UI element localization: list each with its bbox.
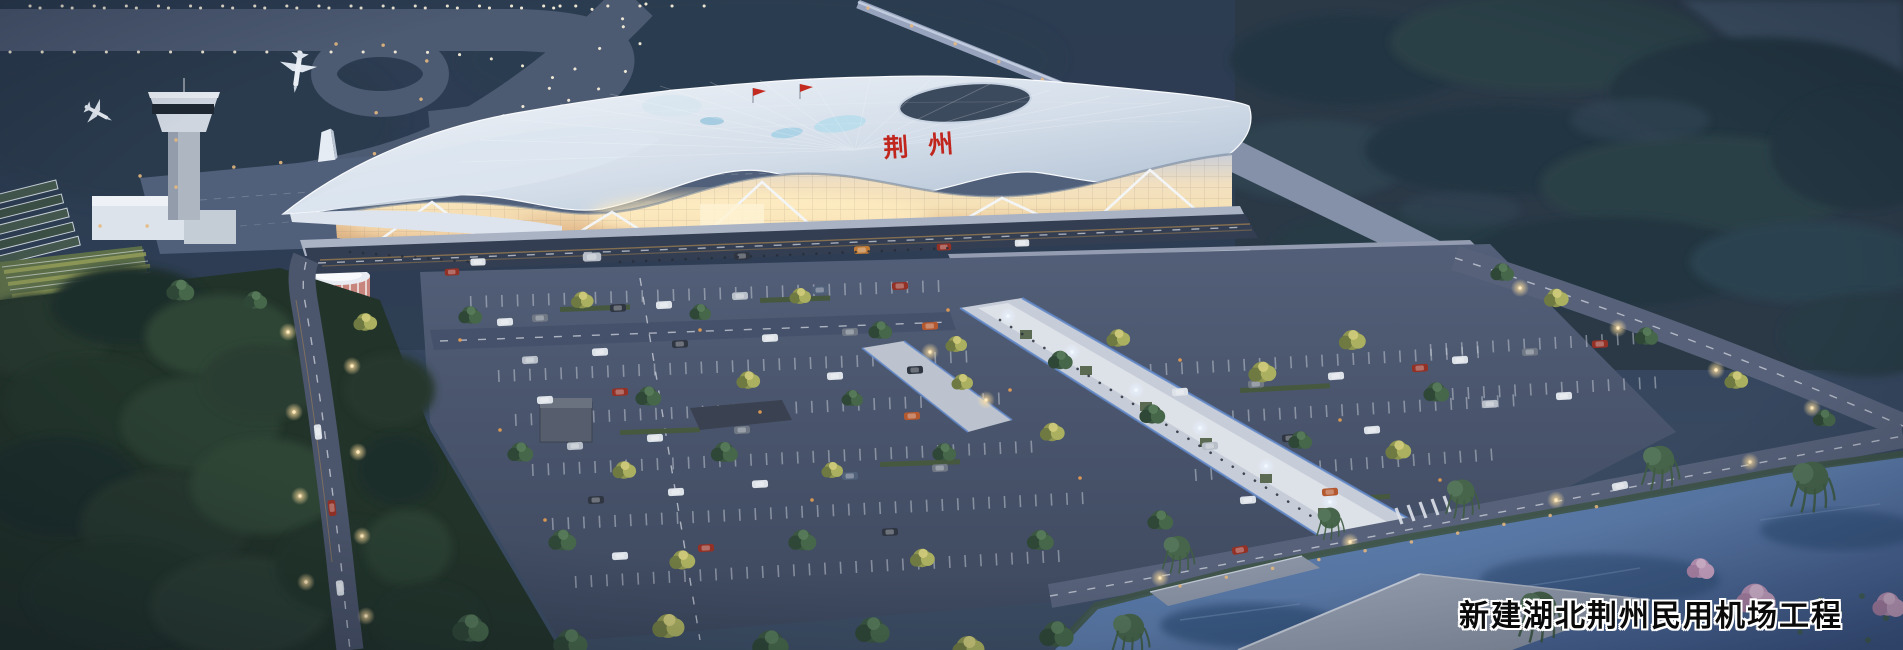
rendering-canvas: ;	[0, 0, 1903, 650]
vignette	[0, 0, 1903, 650]
airport-rendering: ;	[0, 0, 1903, 650]
project-caption: 新建湖北荆州民用机场工程	[1459, 591, 1843, 635]
